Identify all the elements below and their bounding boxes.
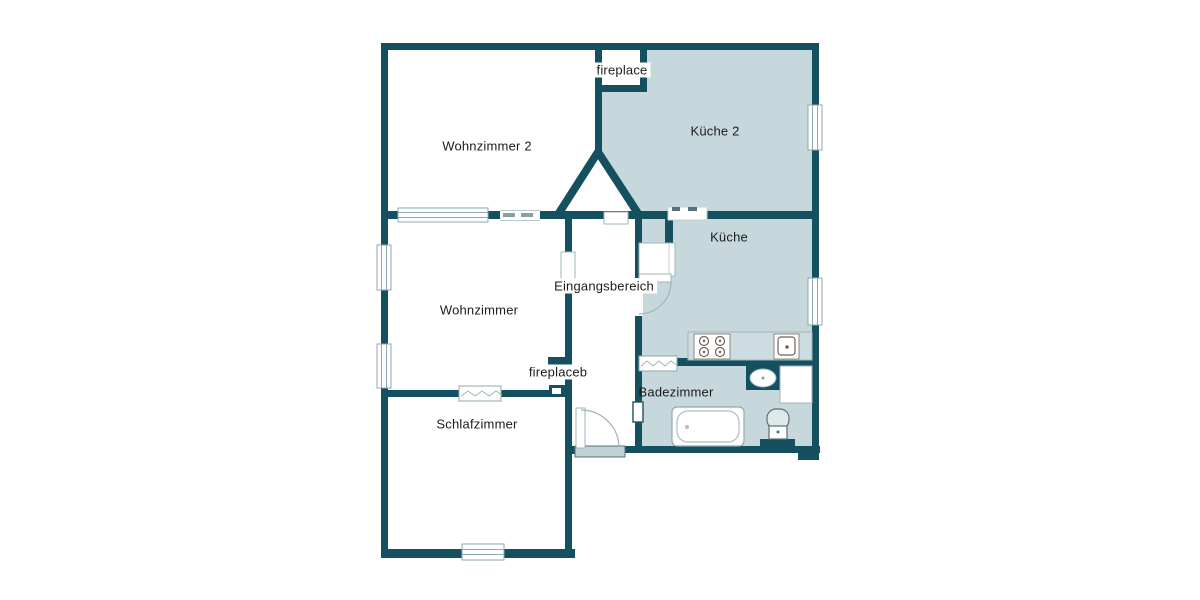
closet-box — [639, 243, 675, 276]
wall-badezimmer-bottom — [622, 446, 820, 453]
label-fireplaceb: fireplaceb — [526, 365, 590, 380]
toilet-icon — [767, 409, 789, 439]
opening-bay-corridor — [604, 212, 628, 224]
window-icon — [639, 356, 677, 371]
window-icon — [462, 544, 504, 560]
floor-plan-page: fireplace Wohnzimmer 2 Küche 2 Küche Ein… — [0, 0, 1200, 600]
label-eingangsbereich: Eingangsbereich — [551, 279, 657, 294]
label-wohnzimmer: Wohnzimmer — [440, 303, 518, 318]
wall-left — [381, 43, 388, 558]
wall-corner-step — [798, 446, 819, 460]
window-icon — [808, 278, 822, 325]
opening-kueche2-kueche — [668, 207, 707, 220]
window-icon — [808, 105, 822, 150]
kitchen-sink-icon — [774, 334, 799, 359]
washbasin-icon — [746, 366, 780, 390]
badezimmer-door — [633, 402, 643, 422]
fireplaceb-flue-slot — [552, 388, 561, 394]
opening-dashed — [500, 210, 540, 221]
window-icon — [459, 386, 502, 401]
door-arc-icon — [581, 410, 619, 447]
stove-icon — [694, 334, 730, 359]
wall-wohnzimmer2-kueche2 — [595, 43, 602, 158]
window-icon — [377, 344, 391, 388]
bathtub-icon — [672, 407, 744, 446]
label-wohnzimmer-2: Wohnzimmer 2 — [442, 139, 532, 154]
label-kueche: Küche — [710, 230, 748, 245]
label-kueche-2: Küche 2 — [690, 124, 739, 139]
window-icon — [377, 245, 391, 290]
entrance-door-leaf — [576, 408, 585, 448]
floor-plan-drawing — [0, 0, 1200, 600]
window-icon — [398, 208, 488, 222]
toilet-pedestal — [760, 439, 795, 447]
wall-fireplace-bottom — [602, 85, 647, 92]
label-schlafzimmer: Schlafzimmer — [436, 417, 517, 432]
shower-icon — [780, 366, 812, 403]
label-fireplace: fireplace — [594, 63, 651, 78]
label-badezimmer: Badezimmer — [639, 385, 714, 400]
entrance-door — [575, 408, 625, 457]
